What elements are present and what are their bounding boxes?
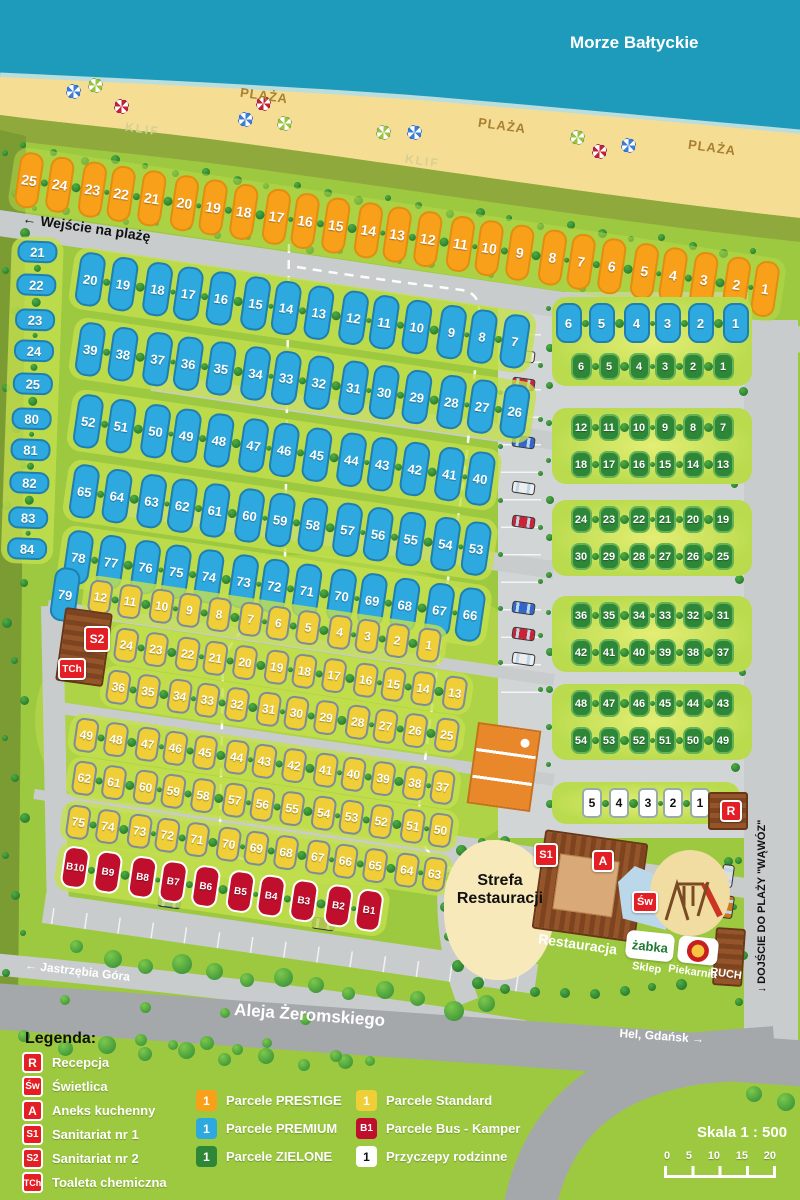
parcel-premium-55[interactable]: 55	[394, 510, 428, 567]
legend-item: B1Parcele Bus - Kamper	[356, 1118, 520, 1139]
parcel-standard-58[interactable]: 58	[189, 777, 217, 814]
parcel-prestige-17[interactable]: 17	[260, 187, 292, 246]
parcel-standard-17[interactable]: 17	[320, 657, 348, 694]
bush-icon	[592, 424, 599, 431]
parcel-premium-34[interactable]: 34	[239, 345, 273, 402]
parcel-zielone-38[interactable]: 38	[683, 639, 704, 666]
parcel-family-5[interactable]: 5	[582, 788, 602, 818]
parcel-zielone-54[interactable]: 54	[571, 727, 592, 754]
strefa-line1: Strefa	[450, 872, 550, 890]
parcel-standard-66[interactable]: 66	[332, 843, 360, 880]
legend-label: Przyczepy rodzinne	[386, 1149, 507, 1164]
bush-icon	[592, 649, 599, 656]
parcel-premium-50[interactable]: 50	[139, 403, 173, 460]
legend-icon-tch: TCh	[22, 1172, 43, 1193]
parcel-standard-44[interactable]: 44	[223, 739, 251, 776]
parcel-standard-54[interactable]: 54	[310, 795, 338, 832]
parcel-standard-47[interactable]: 47	[134, 726, 162, 763]
parcel-premium-33[interactable]: 33	[269, 349, 303, 406]
parcel-bus-B3[interactable]: B3	[288, 878, 320, 923]
parcel-zielone-35[interactable]: 35	[599, 602, 620, 629]
parcel-bus-B6[interactable]: B6	[190, 864, 222, 909]
bush-icon	[650, 738, 655, 743]
parcel-zielone-26[interactable]: 26	[683, 543, 704, 570]
parcel-premium-47[interactable]: 47	[237, 417, 271, 474]
parcel-premium-22[interactable]: 22	[16, 273, 57, 296]
scale-tick: 20	[764, 1150, 776, 1162]
parcel-premium-64[interactable]: 64	[100, 468, 134, 525]
parcel-bus-B7[interactable]: B7	[157, 859, 189, 904]
parcel-standard-50[interactable]: 50	[427, 812, 455, 849]
legend-icon-premium: 1	[196, 1118, 217, 1139]
parcel-premium-23[interactable]: 23	[15, 308, 56, 331]
bush-icon	[704, 648, 713, 657]
legend-facilities: RRecepcjaŚwŚwietlicaAAneks kuchennyS1San…	[22, 1052, 167, 1193]
parcel-standard-68[interactable]: 68	[272, 834, 300, 871]
bush-icon	[31, 298, 40, 307]
parcel-premium-17[interactable]: 17	[172, 265, 206, 322]
parcel-zielone-20[interactable]: 20	[683, 506, 704, 533]
bush-icon	[650, 650, 655, 655]
sanitariat-1-icon[interactable]: S1	[534, 843, 558, 867]
bush-icon	[676, 424, 683, 431]
parcel-standard-33[interactable]: 33	[194, 682, 222, 719]
parcel-standard-51[interactable]: 51	[399, 808, 427, 845]
parcel-standard-11[interactable]: 11	[116, 583, 144, 620]
parcel-premium-40[interactable]: 40	[463, 450, 497, 507]
parcel-zielone-2[interactable]: 2	[683, 353, 704, 380]
parcel-premium-57[interactable]: 57	[331, 501, 365, 558]
parcel-premium-30[interactable]: 30	[367, 364, 401, 421]
bush-icon	[676, 516, 683, 523]
parcel-zielone-39[interactable]: 39	[655, 639, 676, 666]
parcel-standard-35[interactable]: 35	[134, 673, 162, 710]
parcel-zielone-23[interactable]: 23	[599, 506, 620, 533]
parcel-standard-49[interactable]: 49	[72, 717, 100, 754]
zielone-group-3: 242322212019 302928272625	[552, 500, 752, 576]
parcel-standard-43[interactable]: 43	[251, 743, 279, 780]
parcel-zielone-52[interactable]: 52	[629, 727, 650, 754]
parcel-prestige-25[interactable]: 25	[13, 151, 45, 210]
parcel-premium-49[interactable]: 49	[170, 407, 204, 464]
parcel-premium-61[interactable]: 61	[198, 482, 232, 539]
sea-label: Morze Bałtyckie	[570, 33, 699, 53]
parcel-premium-44[interactable]: 44	[335, 431, 369, 488]
ball-icon	[520, 738, 530, 748]
strefa-label: Strefa Restauracji	[450, 872, 550, 909]
parcel-premium-right-3[interactable]: 3	[655, 303, 681, 343]
parcel-premium-29[interactable]: 29	[400, 368, 434, 425]
legend-item: S2Sanitariat nr 2	[22, 1148, 167, 1169]
parcel-family-4[interactable]: 4	[609, 788, 629, 818]
parcel-bus-B4[interactable]: B4	[255, 873, 287, 918]
parcel-premium-right-4[interactable]: 4	[624, 303, 650, 343]
parcel-bus-B10[interactable]: B10	[59, 845, 91, 890]
bush-icon	[676, 553, 683, 560]
zielone-group-1: 654321 654321	[552, 297, 752, 386]
parcel-standard-30[interactable]: 30	[283, 695, 311, 732]
parcel-standard-69[interactable]: 69	[243, 830, 271, 867]
parcel-zielone-27[interactable]: 27	[655, 543, 676, 570]
parcel-standard-9[interactable]: 9	[176, 592, 204, 629]
parcel-family-1[interactable]: 1	[690, 788, 710, 818]
bush-icon	[704, 460, 713, 469]
parcel-standard-38[interactable]: 38	[401, 765, 429, 802]
parcel-bus-B9[interactable]: B9	[92, 850, 124, 895]
parcel-premium-right-1[interactable]: 1	[723, 303, 749, 343]
parcel-premium-66[interactable]: 66	[453, 586, 487, 643]
legend-label: Sanitariat nr 2	[52, 1151, 139, 1166]
parcel-premium-37[interactable]: 37	[141, 331, 175, 388]
parcel-standard-72[interactable]: 72	[154, 817, 182, 854]
parcel-premium-31[interactable]: 31	[337, 359, 371, 416]
parcel-zielone-6[interactable]: 6	[571, 353, 592, 380]
parcel-premium-18[interactable]: 18	[141, 261, 175, 318]
parcel-zielone-3[interactable]: 3	[655, 353, 676, 380]
legend-icon-family: 1	[356, 1146, 377, 1167]
campground-map: Morze Bałtyckie PLAŻA PLAŻA PLAŻA KLIF K…	[0, 0, 800, 1200]
parcel-standard-55[interactable]: 55	[278, 790, 306, 827]
parcel-premium-13[interactable]: 13	[302, 284, 336, 341]
sanitariat-2-icon[interactable]: S2	[84, 626, 110, 652]
bush-icon	[704, 699, 713, 708]
parcel-bus-B2[interactable]: B2	[323, 883, 355, 928]
parcel-premium-62[interactable]: 62	[166, 477, 200, 534]
parcel-zielone-47[interactable]: 47	[599, 690, 620, 717]
bush-icon	[620, 515, 629, 524]
parcel-standard-34[interactable]: 34	[166, 678, 194, 715]
parcel-premium-32[interactable]: 32	[302, 354, 336, 411]
legend-item: 1Parcele PRESTIGE	[196, 1090, 342, 1111]
parcel-standard-20[interactable]: 20	[231, 644, 259, 681]
parcel-standard-3[interactable]: 3	[354, 618, 382, 655]
parcel-premium-right-6[interactable]: 6	[556, 303, 582, 343]
parcel-premium-16[interactable]: 16	[204, 270, 238, 327]
parcel-zielone-37[interactable]: 37	[713, 639, 734, 666]
parcel-zielone-18[interactable]: 18	[571, 451, 592, 478]
parcel-standard-16[interactable]: 16	[352, 662, 380, 699]
parcel-standard-26[interactable]: 26	[401, 712, 429, 749]
parcel-zielone-16[interactable]: 16	[629, 451, 650, 478]
parcel-premium-52[interactable]: 52	[72, 393, 106, 450]
legend-label: Parcele ZIELONE	[226, 1149, 332, 1164]
common-room-icon[interactable]: Św	[632, 891, 658, 913]
parcel-standard-5[interactable]: 5	[294, 609, 322, 646]
parcel-premium-7[interactable]: 7	[498, 313, 532, 370]
bush-icon	[676, 700, 683, 707]
scale-label: Skala 1 : 500	[697, 1124, 787, 1141]
parcel-standard-28[interactable]: 28	[344, 704, 372, 741]
legend-item: S1Sanitariat nr 1	[22, 1124, 167, 1145]
bush-icon	[620, 552, 629, 561]
parcel-premium-14[interactable]: 14	[269, 279, 303, 336]
bakery-shop[interactable]	[677, 935, 720, 966]
parcel-zielone-49[interactable]: 49	[713, 727, 734, 754]
scale-ticks: 05101520	[664, 1150, 776, 1162]
parcel-premium-24[interactable]: 24	[14, 339, 55, 362]
parcel-premium-41[interactable]: 41	[433, 446, 467, 503]
parcel-premium-27[interactable]: 27	[465, 378, 499, 435]
parcel-zielone-13[interactable]: 13	[713, 451, 734, 478]
parcel-premium-54[interactable]: 54	[429, 516, 463, 573]
parcel-premium-83[interactable]: 83	[8, 506, 49, 529]
parcel-premium-46[interactable]: 46	[267, 421, 301, 478]
parcel-standard-67[interactable]: 67	[304, 839, 332, 876]
bush-icon	[704, 515, 713, 524]
bush-icon	[30, 364, 37, 371]
parcel-prestige-7[interactable]: 7	[565, 232, 597, 291]
parcel-premium-12[interactable]: 12	[337, 289, 371, 346]
parcel-zielone-50[interactable]: 50	[683, 727, 704, 754]
kitchen-annex-icon[interactable]: A	[592, 850, 614, 872]
parcel-premium-59[interactable]: 59	[263, 491, 297, 548]
parcel-prestige-14[interactable]: 14	[352, 201, 384, 260]
parcel-prestige-19[interactable]: 19	[197, 178, 229, 237]
parcel-bus-B8[interactable]: B8	[127, 855, 159, 900]
parcel-premium-48[interactable]: 48	[202, 412, 236, 469]
parcel-premium-right-5[interactable]: 5	[589, 303, 615, 343]
chemical-toilet-icon[interactable]: TCh	[58, 658, 86, 680]
parcel-premium-43[interactable]: 43	[365, 436, 399, 493]
parcel-premium-21[interactable]: 21	[17, 240, 58, 263]
bush-icon	[704, 611, 713, 620]
parcel-standard-59[interactable]: 59	[160, 773, 188, 810]
parcel-premium-58[interactable]: 58	[296, 496, 330, 553]
parcel-zielone-53[interactable]: 53	[599, 727, 620, 754]
parcel-zielone-46[interactable]: 46	[629, 690, 650, 717]
parcel-prestige-16[interactable]: 16	[289, 192, 321, 251]
parcel-zielone-33[interactable]: 33	[655, 602, 676, 629]
parcel-standard-32[interactable]: 32	[223, 686, 251, 723]
legend-title: Legenda:	[25, 1030, 96, 1048]
parcel-standard-60[interactable]: 60	[132, 769, 160, 806]
parcel-zielone-29[interactable]: 29	[599, 543, 620, 570]
parcel-premium-42[interactable]: 42	[398, 440, 432, 497]
bush-icon	[676, 737, 683, 744]
parcel-standard-23[interactable]: 23	[142, 631, 170, 668]
parcel-zielone-19[interactable]: 19	[713, 506, 734, 533]
parcel-standard-24[interactable]: 24	[112, 627, 140, 664]
parcel-zielone-42[interactable]: 42	[571, 639, 592, 666]
parcel-standard-2[interactable]: 2	[383, 622, 411, 659]
parcel-premium-19[interactable]: 19	[106, 256, 140, 313]
parcel-zielone-30[interactable]: 30	[571, 543, 592, 570]
parcel-standard-6[interactable]: 6	[265, 605, 293, 642]
parcel-premium-9[interactable]: 9	[435, 304, 469, 361]
bush-icon	[620, 423, 629, 432]
parcel-standard-63[interactable]: 63	[421, 856, 449, 893]
parcel-zielone-31[interactable]: 31	[713, 602, 734, 629]
parcel-zielone-24[interactable]: 24	[571, 506, 592, 533]
parcel-bus-B5[interactable]: B5	[225, 869, 257, 914]
parcel-premium-60[interactable]: 60	[233, 487, 267, 544]
parcel-zielone-4[interactable]: 4	[629, 353, 650, 380]
parcel-standard-65[interactable]: 65	[361, 847, 389, 884]
parcel-premium-11[interactable]: 11	[367, 294, 401, 351]
parcel-zielone-32[interactable]: 32	[683, 602, 704, 629]
parcel-premium-25[interactable]: 25	[12, 372, 53, 395]
reception-icon[interactable]: R	[720, 800, 742, 822]
parcel-premium-82[interactable]: 82	[9, 471, 50, 494]
bush-icon	[32, 333, 37, 338]
legend-icon-zielone: 1	[196, 1146, 217, 1167]
parcel-zielone-17[interactable]: 17	[599, 451, 620, 478]
bush-icon	[25, 531, 30, 536]
parcel-standard-7[interactable]: 7	[237, 601, 265, 638]
parcel-standard-41[interactable]: 41	[312, 752, 340, 789]
parcel-standard-70[interactable]: 70	[215, 826, 243, 863]
parcel-premium-38[interactable]: 38	[106, 326, 140, 383]
parcel-zielone-51[interactable]: 51	[655, 727, 676, 754]
parcel-premium-15[interactable]: 15	[239, 275, 273, 332]
bush-icon	[602, 800, 609, 807]
parcel-zielone-36[interactable]: 36	[571, 602, 592, 629]
parcel-prestige-8[interactable]: 8	[536, 228, 568, 287]
parcel-zielone-44[interactable]: 44	[683, 690, 704, 717]
parcel-premium-35[interactable]: 35	[204, 340, 238, 397]
parcel-standard-73[interactable]: 73	[126, 813, 154, 850]
zielone-group-2: 121110987 181716151413	[552, 408, 752, 484]
parcel-standard-61[interactable]: 61	[100, 764, 128, 801]
parcel-prestige-5[interactable]: 5	[628, 242, 660, 301]
parcel-standard-22[interactable]: 22	[174, 636, 202, 673]
parcel-zielone-7[interactable]: 7	[713, 414, 734, 441]
parcel-standard-18[interactable]: 18	[291, 653, 319, 690]
parcel-standard-27[interactable]: 27	[372, 708, 400, 745]
parcel-prestige-22[interactable]: 22	[105, 164, 137, 223]
bush-icon	[676, 612, 683, 619]
parcel-zielone-14[interactable]: 14	[683, 451, 704, 478]
parcel-premium-80[interactable]: 80	[11, 407, 52, 430]
parcel-zielone-25[interactable]: 25	[713, 543, 734, 570]
parcel-standard-75[interactable]: 75	[64, 804, 92, 841]
parcel-standard-21[interactable]: 21	[202, 640, 230, 677]
parcel-standard-42[interactable]: 42	[280, 747, 308, 784]
parcel-standard-48[interactable]: 48	[102, 721, 130, 758]
parcel-standard-71[interactable]: 71	[183, 821, 211, 858]
legend-icon-s2: S2	[22, 1148, 43, 1169]
parcel-family-2[interactable]: 2	[663, 788, 683, 818]
parcel-premium-8[interactable]: 8	[465, 308, 499, 365]
parcel-zielone-43[interactable]: 43	[713, 690, 734, 717]
parcel-standard-46[interactable]: 46	[162, 730, 190, 767]
parcel-premium-28[interactable]: 28	[435, 374, 469, 431]
parcel-prestige-4[interactable]: 4	[657, 246, 689, 305]
parcel-zielone-28[interactable]: 28	[629, 543, 650, 570]
parcel-premium-53[interactable]: 53	[459, 520, 493, 577]
sports-court	[467, 722, 542, 812]
parcel-standard-57[interactable]: 57	[221, 782, 249, 819]
parcel-premium-63[interactable]: 63	[135, 473, 169, 530]
bush-icon	[620, 362, 629, 371]
parcel-standard-39[interactable]: 39	[369, 760, 397, 797]
parcel-zielone-15[interactable]: 15	[655, 451, 676, 478]
zabka-shop[interactable]: żabka	[625, 930, 676, 963]
parcel-premium-36[interactable]: 36	[172, 335, 206, 392]
scale-tick: 15	[736, 1150, 748, 1162]
parcel-standard-40[interactable]: 40	[340, 756, 368, 793]
bush-icon	[714, 319, 723, 328]
parcel-standard-74[interactable]: 74	[94, 808, 122, 845]
parcel-standard-14[interactable]: 14	[409, 670, 437, 707]
parcel-standard-13[interactable]: 13	[441, 675, 469, 712]
parcel-premium-39[interactable]: 39	[74, 321, 108, 378]
parcel-zielone-11[interactable]: 11	[599, 414, 620, 441]
parcel-premium-84[interactable]: 84	[7, 537, 48, 560]
parcel-standard-53[interactable]: 53	[338, 799, 366, 836]
parcel-zielone-40[interactable]: 40	[629, 639, 650, 666]
parcel-premium-right-2[interactable]: 2	[688, 303, 714, 343]
parcel-standard-56[interactable]: 56	[249, 786, 277, 823]
parcel-premium-65[interactable]: 65	[68, 463, 102, 520]
parcel-standard-1[interactable]: 1	[415, 627, 443, 664]
bakery-logo	[685, 937, 711, 963]
parcel-prestige-10[interactable]: 10	[473, 219, 505, 278]
parcel-standard-45[interactable]: 45	[191, 734, 219, 771]
bush-icon	[683, 800, 690, 807]
parcel-premium-10[interactable]: 10	[400, 298, 434, 355]
parcel-standard-62[interactable]: 62	[70, 760, 98, 797]
parcel-prestige-1[interactable]: 1	[749, 260, 781, 319]
parcel-premium-20[interactable]: 20	[74, 251, 108, 308]
parcel-standard-10[interactable]: 10	[148, 588, 176, 625]
parcel-zielone-12[interactable]: 12	[571, 414, 592, 441]
legend-icon-standard: 1	[356, 1090, 377, 1111]
parcel-zielone-34[interactable]: 34	[629, 602, 650, 629]
parcel-family-3[interactable]: 3	[638, 788, 658, 818]
parcel-zielone-48[interactable]: 48	[571, 690, 592, 717]
parcel-standard-64[interactable]: 64	[393, 852, 421, 889]
parcel-premium-51[interactable]: 51	[104, 398, 138, 455]
parcel-standard-25[interactable]: 25	[433, 717, 461, 754]
parcel-premium-45[interactable]: 45	[300, 426, 334, 483]
parcel-zielone-5[interactable]: 5	[599, 353, 620, 380]
parcel-prestige-20[interactable]: 20	[168, 174, 200, 233]
parcel-premium-81[interactable]: 81	[10, 438, 51, 461]
bush-icon	[582, 320, 589, 327]
parcel-zielone-8[interactable]: 8	[683, 414, 704, 441]
parcel-bus-B1[interactable]: B1	[353, 888, 385, 933]
bush-icon	[29, 432, 34, 437]
parcel-premium-56[interactable]: 56	[361, 506, 395, 563]
legend-icon-s1: S1	[22, 1124, 43, 1145]
parcel-prestige-23[interactable]: 23	[76, 160, 108, 219]
parcel-standard-36[interactable]: 36	[104, 669, 132, 706]
parcel-zielone-9[interactable]: 9	[655, 414, 676, 441]
parcel-standard-52[interactable]: 52	[367, 803, 395, 840]
parcel-zielone-45[interactable]: 45	[655, 690, 676, 717]
bush-icon	[592, 612, 599, 619]
parcel-standard-8[interactable]: 8	[205, 596, 233, 633]
parcel-zielone-41[interactable]: 41	[599, 639, 620, 666]
parcel-zielone-22[interactable]: 22	[629, 506, 650, 533]
parcel-zielone-21[interactable]: 21	[655, 506, 676, 533]
legend-item: 1Parcele PREMIUM	[196, 1118, 342, 1139]
parcel-standard-15[interactable]: 15	[380, 666, 408, 703]
parcel-zielone-1[interactable]: 1	[713, 353, 734, 380]
parcel-zielone-10[interactable]: 10	[629, 414, 650, 441]
parcel-standard-37[interactable]: 37	[429, 769, 457, 806]
parcel-standard-4[interactable]: 4	[326, 614, 354, 651]
parcel-prestige-13[interactable]: 13	[381, 205, 413, 264]
legend-label: Parcele Bus - Kamper	[386, 1121, 520, 1136]
parcel-prestige-11[interactable]: 11	[444, 215, 476, 274]
parcel-premium-26[interactable]: 26	[498, 383, 532, 440]
parcel-standard-31[interactable]: 31	[255, 691, 283, 728]
parcel-standard-19[interactable]: 19	[263, 649, 291, 686]
legend-label: Toaleta chemiczna	[52, 1175, 167, 1190]
parcel-standard-29[interactable]: 29	[312, 699, 340, 736]
